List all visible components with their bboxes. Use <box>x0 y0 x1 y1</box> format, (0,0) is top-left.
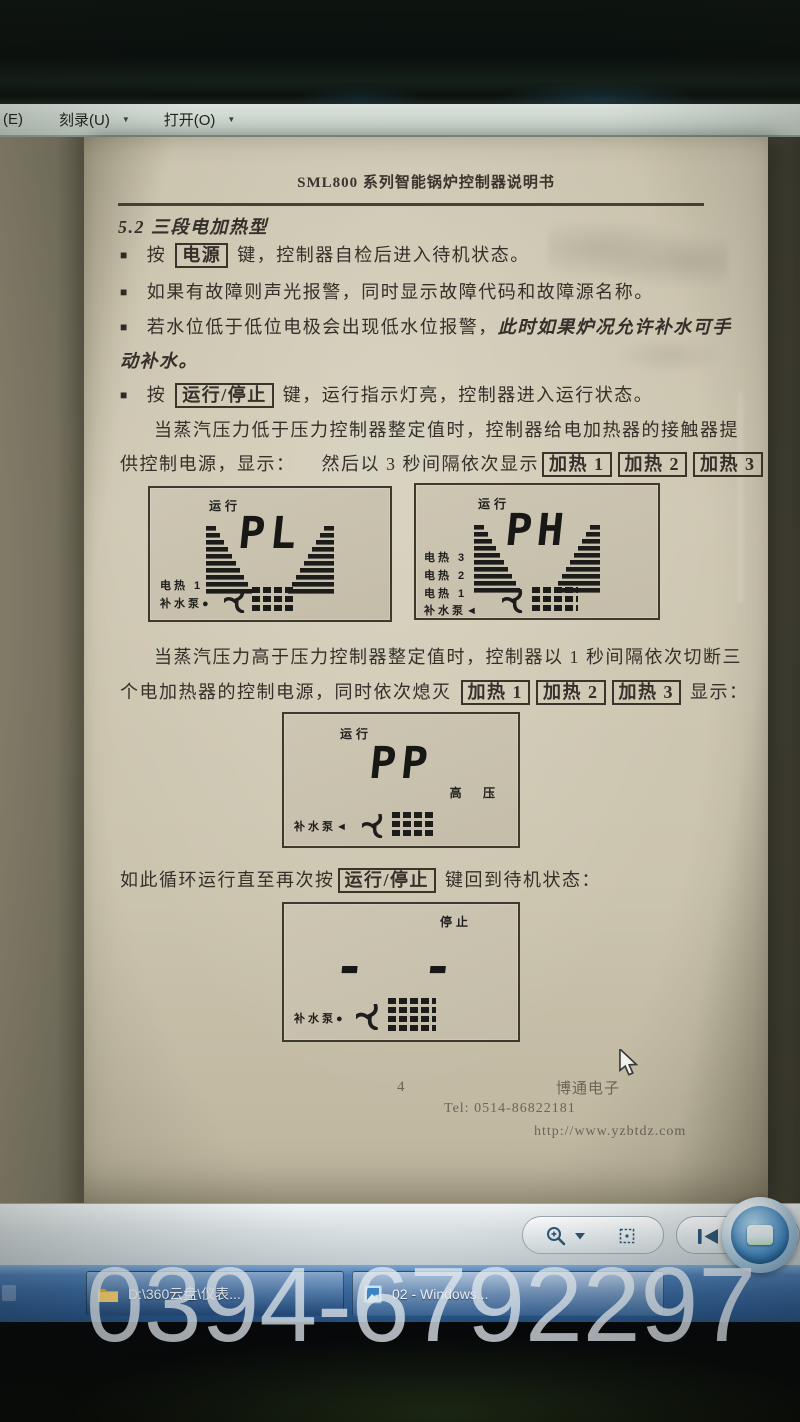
page-edge-highlight <box>739 392 742 602</box>
menu-item-burn-label: 刻录(U) <box>59 109 110 130</box>
chevron-down-icon: ▼ <box>227 115 235 124</box>
bullet-fault: ■如果有故障则声光报警，同时显示故障代码和故障源名称。 <box>120 278 654 304</box>
heat2-key-label: 加热 2 <box>618 452 688 477</box>
power-key-label: 电源 <box>175 243 228 268</box>
lcd-label-feed-pump: 补水泵◄ <box>294 818 350 834</box>
menu-item-partial[interactable]: (E) <box>0 104 31 135</box>
paper-stain <box>604 333 734 377</box>
bullet-fault-text: 如果有故障则声光报警，同时显示故障代码和故障源名称。 <box>147 282 654 302</box>
bullet-low-water-em: 此时如果炉况允许补水可手 <box>498 317 732 337</box>
lcd-label-feed-pump: 补水泵◄ <box>424 602 480 618</box>
heat1-key-label: 加热 1 <box>461 680 531 705</box>
paragraph-low-pressure-line1: 当蒸汽压力低于压力控制器整定值时，控制器给电加热器的接触器提 <box>154 416 739 442</box>
bullet-icon: ■ <box>120 388 129 403</box>
photo-viewer-canvas: SML800 系列智能锅炉控制器说明书 5.2 三段电加热型 ■按 电源 键，控… <box>0 137 800 1203</box>
slideshow-icon <box>747 1225 773 1245</box>
lcd-label-feed-pump: 补水泵● <box>294 1010 346 1026</box>
bullet-run-pre: 按 <box>147 385 173 405</box>
heat3-key-label: 加热 3 <box>612 680 682 705</box>
lcd-label-heater3: 电热 3 <box>424 549 467 565</box>
lcd-display-standby: 停止 - - 补水泵● <box>282 902 520 1042</box>
paragraph-low-pressure-line2: 供控制电源，显示：然后以 3 秒间隔依次显示加热 1加热 2加热 3 <box>120 450 766 477</box>
bullet-run-post: 键，运行指示灯亮，控制器进入运行状态。 <box>277 385 654 405</box>
lcd-status-label: 运行 <box>340 725 372 742</box>
menu-item-open[interactable]: 打开(O) ▼ <box>156 104 244 135</box>
bullet-low-water-pre: 若水位低于低位电极会出现低水位报警， <box>147 317 498 337</box>
menu-item-burn[interactable]: 刻录(U) ▼ <box>51 104 138 135</box>
bullet-icon: ■ <box>120 320 129 335</box>
previous-image-icon[interactable] <box>697 1228 719 1245</box>
heat3-key-label: 加热 3 <box>693 452 763 477</box>
lcd-label-high-pressure: 高 压 <box>450 784 504 801</box>
footer-tel: Tel: 0514-86822181 <box>444 1101 576 1117</box>
fan-icon <box>362 814 386 838</box>
p2-pre: 个电加热器的控制电源，同时依次熄灭 <box>120 682 458 702</box>
run-stop-key-label: 运行/停止 <box>338 868 437 893</box>
lcd-bar-graph-right <box>554 525 600 593</box>
menu-bar: (E) 刻录(U) ▼ 打开(O) ▼ <box>0 104 800 137</box>
lcd-label-heater2: 电热 2 <box>424 567 467 583</box>
bullet-icon: ■ <box>120 285 129 300</box>
heat1-key-label: 加热 1 <box>542 452 612 477</box>
lcd-value: PP <box>282 742 521 786</box>
bullet-power-post: 键，控制器自检后进入待机状态。 <box>231 245 530 265</box>
taskbar-edge-icon <box>2 1285 16 1301</box>
page-number: 4 <box>397 1079 406 1096</box>
lcd-label-feed-pump: 补水泵● <box>160 595 212 611</box>
paragraph-over-pressure-line2: 个电加热器的控制电源，同时依次熄灭 加热 1加热 2加热 3 显示： <box>120 678 749 705</box>
heater-blocks-icon <box>392 812 436 836</box>
lcd-display-pp: 运行 PP 高 压 补水泵◄ <box>282 712 520 848</box>
lcd-status-label: 停止 <box>440 913 472 930</box>
lcd-label-heater1: 电热 1 <box>160 577 203 593</box>
p2-post: 显示： <box>684 682 749 702</box>
lcd-value: - - <box>281 942 520 992</box>
loop-pre: 如此循环运行直至再次按 <box>120 870 335 890</box>
lcd-bar-graph-left <box>206 526 252 594</box>
bullet-run: ■按 运行/停止 键，运行指示灯亮，控制器进入运行状态。 <box>120 381 653 408</box>
footer-url: http://www.yzbtdz.com <box>534 1124 686 1140</box>
lcd-label-heater1: 电热 1 <box>424 585 467 601</box>
chevron-down-icon: ▼ <box>122 115 130 124</box>
bullet-low-water-cont: 动补水。 <box>120 347 198 373</box>
fan-icon <box>356 1004 382 1030</box>
bullet-icon: ■ <box>120 248 129 263</box>
p1-mid: 然后以 3 秒间隔依次显示 <box>322 454 540 474</box>
run-stop-key-label: 运行/停止 <box>175 383 274 408</box>
zoom-icon[interactable] <box>545 1225 567 1247</box>
footer-company: 博通电子 <box>556 1077 620 1098</box>
bullet-low-water: ■若水位低于低位电极会出现低水位报警，此时如果炉况允许补水可手 <box>120 313 732 339</box>
zoom-dropdown-icon[interactable] <box>575 1233 585 1240</box>
lcd-value: PL <box>148 512 393 556</box>
heater-blocks-icon <box>388 998 436 1031</box>
lcd-bar-graph-right <box>288 526 334 594</box>
header-rule <box>118 203 704 206</box>
loop-post: 键回到待机状态： <box>439 870 601 890</box>
document-page: SML800 系列智能锅炉控制器说明书 5.2 三段电加热型 ■按 电源 键，控… <box>84 137 768 1203</box>
p1-pre: 供控制电源，显示： <box>120 454 296 474</box>
lcd-display-high-pressure: 运行 PH 电热 3 电热 2 电热 1 补水泵◄ <box>414 483 660 620</box>
section-title: 5.2 三段电加热型 <box>118 213 268 239</box>
lcd-bar-graph-left <box>474 525 520 593</box>
actual-size-icon[interactable] <box>617 1226 637 1246</box>
mouse-cursor <box>617 1049 641 1077</box>
lcd-value: PH <box>414 509 661 553</box>
document-header-title: SML800 系列智能锅炉控制器说明书 <box>84 171 768 192</box>
lcd-display-low-pressure: 运行 PL 电热 1 补水泵● <box>148 486 392 622</box>
fan-icon <box>224 589 248 613</box>
monitor-bezel <box>0 0 800 104</box>
heater-blocks-icon <box>532 587 578 611</box>
heater-blocks-icon <box>252 587 296 611</box>
heat2-key-label: 加热 2 <box>536 680 606 705</box>
paragraph-over-pressure-line1: 当蒸汽压力高于压力控制器整定值时，控制器以 1 秒间隔依次切断三 <box>154 643 742 669</box>
menu-item-open-label: 打开(O) <box>164 109 216 130</box>
bullet-power-pre: 按 <box>147 245 173 265</box>
bullet-power: ■按 电源 键，控制器自检后进入待机状态。 <box>120 241 530 268</box>
loop-sentence: 如此循环运行直至再次按运行/停止 键回到待机状态： <box>120 866 601 893</box>
fan-icon <box>502 589 526 613</box>
watermark-phone-number: 0394-6792297 <box>86 1252 756 1358</box>
